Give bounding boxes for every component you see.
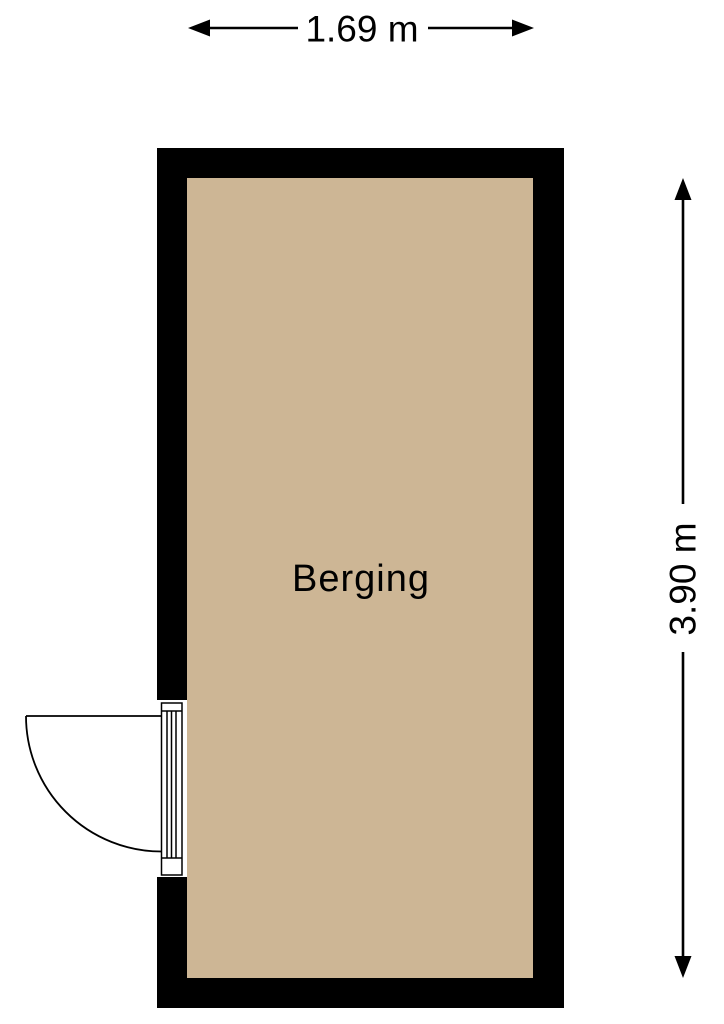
floorplan-canvas: Berging 1.69 m 3.90 m — [0, 0, 724, 1024]
arrow-up-icon — [675, 178, 692, 200]
width-dimension-label: 1.69 m — [305, 9, 418, 50]
arrow-left-icon — [188, 20, 210, 37]
height-dimension: 3.90 m — [663, 178, 704, 978]
room-label: Berging — [292, 558, 430, 600]
width-dimension: 1.69 m — [188, 9, 534, 50]
height-dimension-label: 3.90 m — [663, 522, 704, 635]
door-swing-arc-icon — [26, 716, 162, 852]
floorplan-page: Berging 1.69 m 3.90 m — [0, 0, 724, 1024]
arrow-down-icon — [675, 956, 692, 978]
arrow-right-icon — [512, 20, 534, 37]
